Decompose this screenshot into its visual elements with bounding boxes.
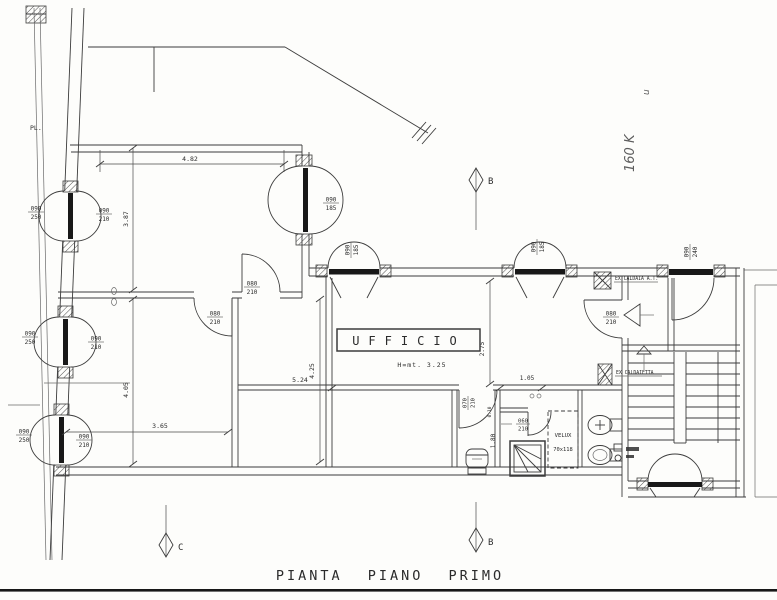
svg-text:210: 210 <box>210 319 221 326</box>
shower-icon <box>510 441 545 476</box>
label-entry-door: 090240 <box>684 244 700 260</box>
section-marker-b-top: B <box>469 168 493 230</box>
property-line-label: PL. <box>30 124 42 132</box>
section-marker-c: C <box>159 505 183 557</box>
boiler-flag-label: EX CALDAIA A.T. <box>615 276 658 282</box>
svg-text:210: 210 <box>471 398 477 408</box>
property-line: PL. <box>30 8 52 560</box>
handwritten-mark: u <box>642 89 652 95</box>
svg-text:090: 090 <box>79 434 90 441</box>
boiler-note-label: EX CALDAIETTA <box>616 370 654 376</box>
section-c-label: C <box>178 543 183 553</box>
svg-text:240: 240 <box>692 246 699 257</box>
dim-wall-thickness: 0.10 <box>487 406 493 417</box>
dim-left-room-depth: 3.87 <box>122 211 130 227</box>
label-door-bath: 070210 <box>463 396 477 410</box>
svg-text:080: 080 <box>606 311 617 318</box>
dim-office-width: 5.24 <box>292 376 308 384</box>
room-height-note: H=mt. 3.25 <box>397 361 446 369</box>
svg-text:210: 210 <box>79 442 90 449</box>
stair-direction-arrow-icon <box>637 346 651 370</box>
label-door-room-a: 090185 <box>323 197 339 213</box>
boiler-note: EX CALDAIETTA <box>598 364 662 385</box>
dim-lower-room-width: 3.65 <box>152 422 168 430</box>
french-window-stair-landing <box>637 454 713 497</box>
label-window1-inner: 090210 <box>96 208 112 224</box>
dim-lower-room-depth: 4.05 <box>122 382 130 398</box>
svg-text:070: 070 <box>463 398 469 408</box>
dim-bath-depth: 1.80 <box>490 433 497 448</box>
toilet-icon <box>466 449 488 474</box>
label-fw-center-left: 090185 <box>345 242 361 258</box>
interior-walls <box>8 145 740 497</box>
handwritten-note: 160 K <box>623 133 638 172</box>
svg-text:090: 090 <box>31 206 42 213</box>
svg-text:185: 185 <box>539 241 546 252</box>
label-fw-center-right: 090185 <box>531 239 547 255</box>
french-window-left-1 <box>39 181 101 252</box>
section-b-top-label: B <box>488 177 493 187</box>
label-door-vestibule: 080210 <box>603 311 619 327</box>
sheet-border-bottom <box>0 589 777 592</box>
section-marker-b-bottom: B <box>469 502 493 552</box>
svg-text:090: 090 <box>25 331 36 338</box>
svg-text:185: 185 <box>353 244 360 255</box>
svg-text:090: 090 <box>19 429 30 436</box>
opening-gaps <box>51 166 714 490</box>
velux-label: VELUX <box>555 433 572 439</box>
scanned-floor-plan-sheet: PL. <box>0 0 777 600</box>
svg-text:210: 210 <box>99 216 110 223</box>
boiler-flag: EX CALDAIA A.T. <box>594 272 658 289</box>
svg-text:210: 210 <box>606 319 617 326</box>
dim-top-width: 4.82 <box>182 155 198 163</box>
dim-niche-width: 1.05 <box>520 375 535 382</box>
staircase <box>614 346 740 461</box>
svg-text:250: 250 <box>25 339 36 346</box>
floor-plan-drawing: PL. <box>0 0 777 600</box>
svg-text:060: 060 <box>518 419 528 425</box>
door-vestibule <box>584 300 654 338</box>
svg-text:090: 090 <box>684 246 691 257</box>
svg-text:250: 250 <box>19 437 30 444</box>
drawing-title: PIANTA PIANO PRIMO <box>276 568 504 584</box>
svg-text:090: 090 <box>345 244 352 255</box>
bidet-icon <box>588 416 622 435</box>
velux-skylight: VELUX 70x118 <box>548 411 578 468</box>
svg-text:090: 090 <box>99 208 110 215</box>
label-window3-inner: 090210 <box>76 434 92 450</box>
room-label-ufficio: UFFICIO H=mt. 3.25 <box>337 329 480 369</box>
svg-text:210: 210 <box>247 289 258 296</box>
stair-micro-marks <box>614 444 639 461</box>
room-name: UFFICIO <box>352 334 466 348</box>
label-window1-outer: 090250 <box>28 206 44 222</box>
svg-text:090: 090 <box>91 336 102 343</box>
svg-text:080: 080 <box>210 311 221 318</box>
svg-text:250: 250 <box>31 214 42 221</box>
svg-text:185: 185 <box>326 205 337 212</box>
svg-text:080: 080 <box>247 281 258 288</box>
label-window2-inner: 090210 <box>88 336 104 352</box>
opening-labels: 090250 090210 090250 090210 090250 09021… <box>16 197 699 450</box>
entry-door <box>657 265 725 320</box>
label-door-interior-low: 080210 <box>207 311 223 327</box>
svg-text:090: 090 <box>531 241 538 252</box>
svg-text:210: 210 <box>518 427 528 433</box>
wall-hatch-top-left <box>26 6 46 23</box>
velux-size-label: 70x118 <box>553 447 572 453</box>
handwritten-annotation: 160 K u <box>623 89 652 172</box>
svg-text:090: 090 <box>326 197 337 204</box>
svg-text:210: 210 <box>91 344 102 351</box>
section-b-bottom-label: B <box>488 538 493 548</box>
dim-mid-room-depth: 4.25 <box>308 363 316 379</box>
french-window-left-2 <box>34 306 96 378</box>
